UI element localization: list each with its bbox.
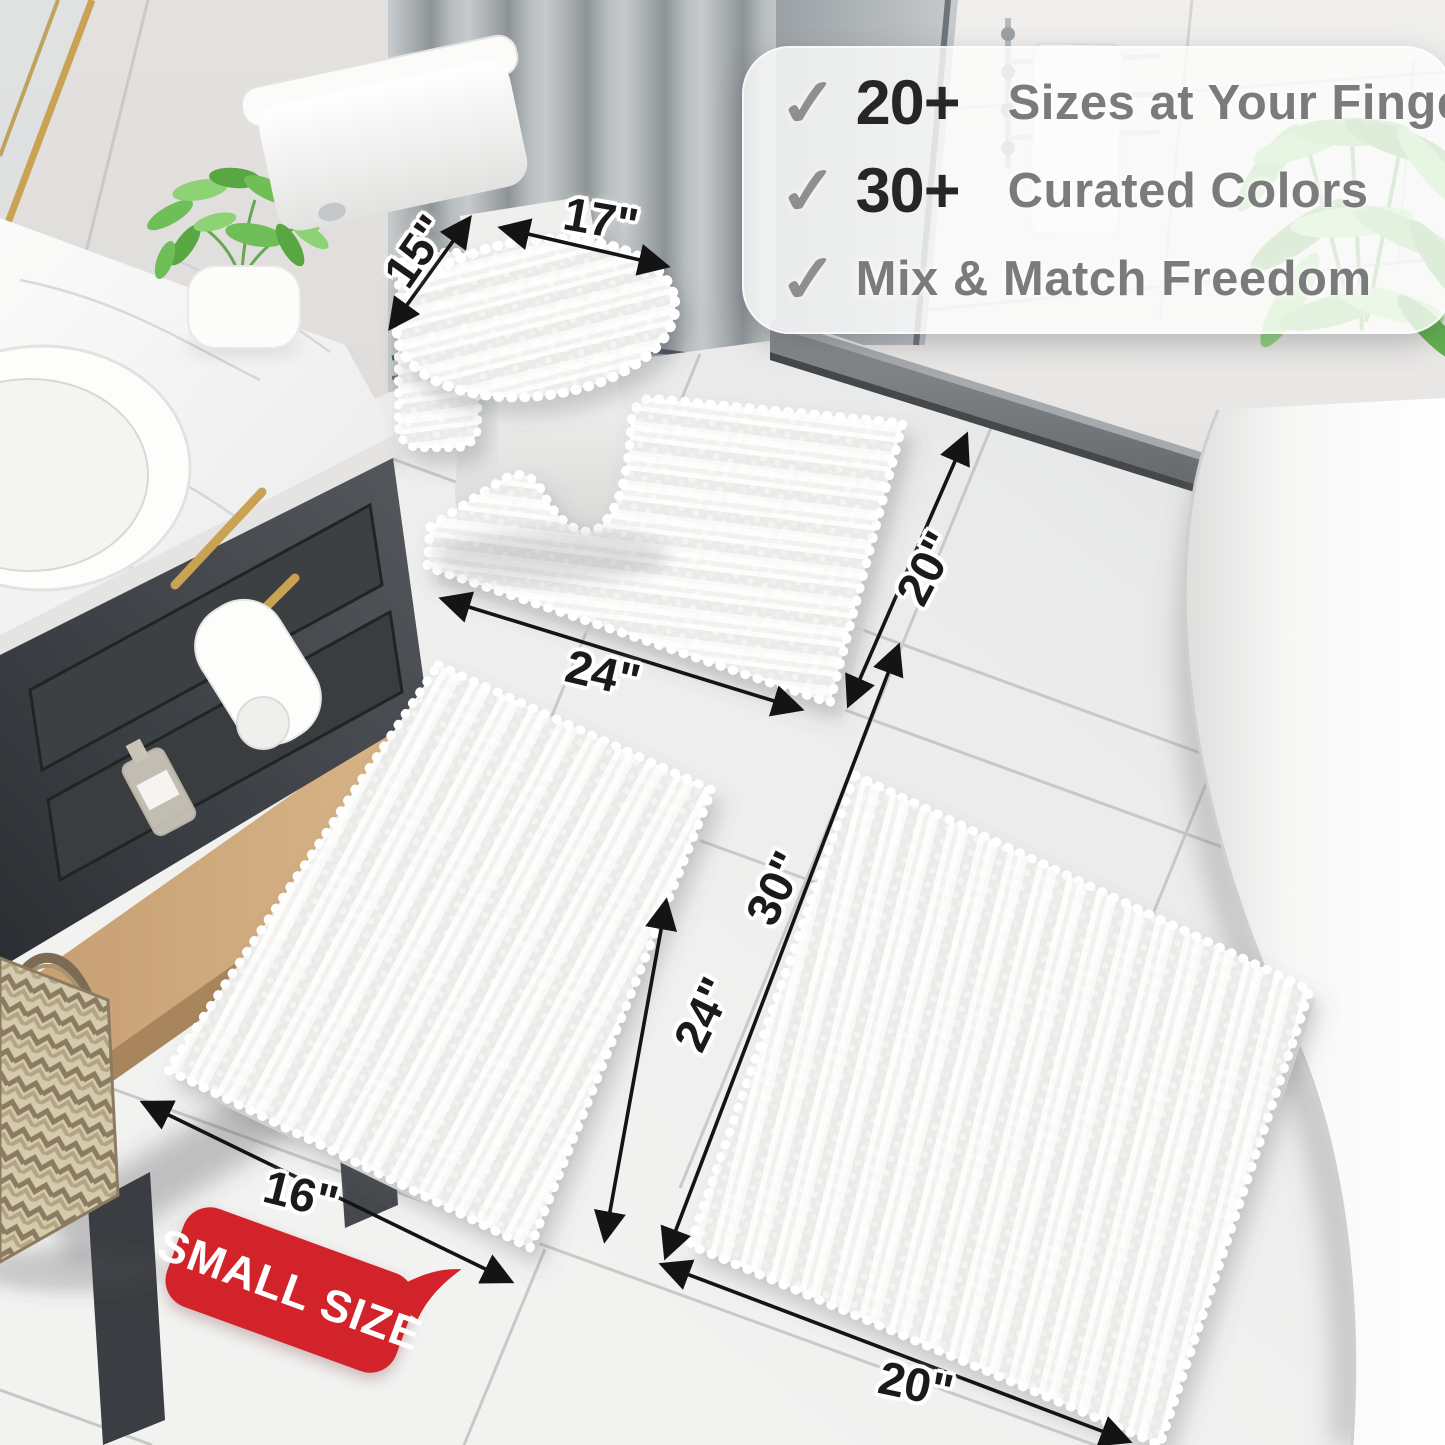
feature-row-sizes: ✓ 20+ Sizes at Your Fingertips — [782, 64, 1429, 142]
check-icon: ✓ — [775, 68, 843, 138]
toilet-shadow — [434, 530, 670, 582]
feature-row-colors: ✓ 30+ Curated Colors — [782, 152, 1429, 230]
feature-row-mix-match: ✓ Mix & Match Freedom — [782, 240, 1429, 318]
feature-value: 20+ — [856, 72, 988, 135]
feature-label: Sizes at Your Fingertips — [1008, 79, 1445, 128]
bath-rug-product-image: 17" 15" 24" 20" 24" 30" 16" 20" ✓ 20+ Si… — [0, 0, 1445, 1445]
features-callout: ✓ 20+ Sizes at Your Fingertips ✓ 30+ Cur… — [742, 46, 1445, 334]
feature-label: Mix & Match Freedom — [856, 255, 1372, 304]
check-icon: ✓ — [775, 244, 843, 314]
plant-pot — [188, 266, 300, 348]
feature-label: Curated Colors — [1008, 167, 1369, 216]
check-icon: ✓ — [775, 156, 843, 226]
feature-value: 30+ — [856, 160, 988, 223]
